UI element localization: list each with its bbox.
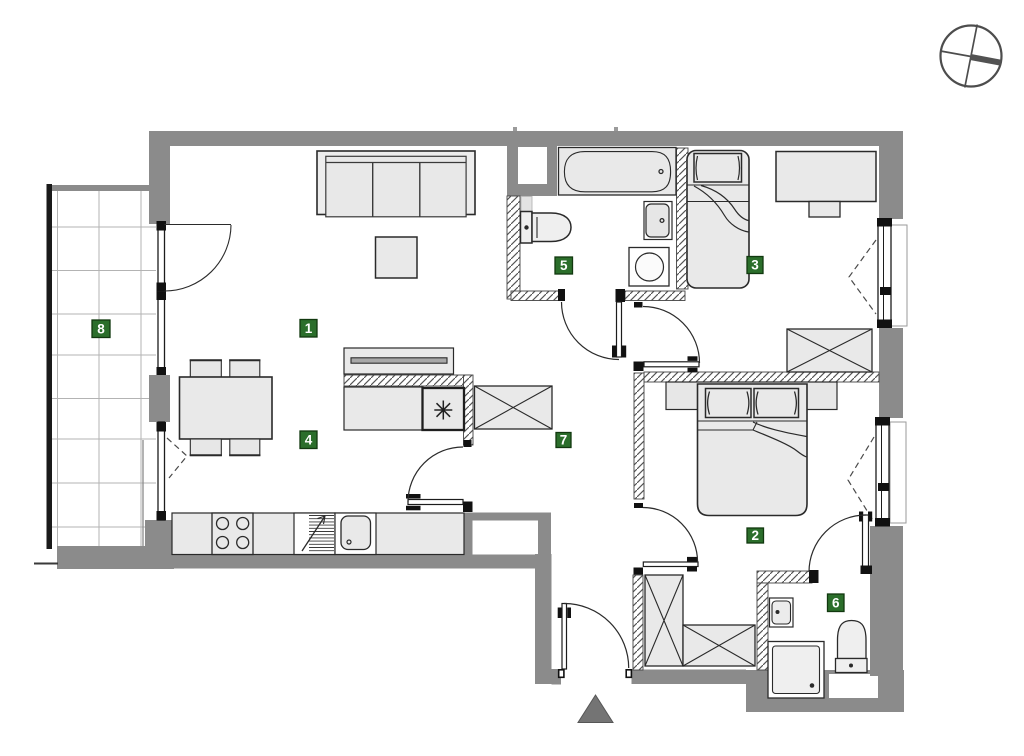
svg-text:3: 3 bbox=[751, 258, 759, 273]
svg-text:8: 8 bbox=[97, 322, 105, 337]
svg-text:5: 5 bbox=[560, 258, 568, 273]
svg-text:2: 2 bbox=[751, 528, 759, 543]
svg-text:6: 6 bbox=[832, 596, 840, 611]
svg-text:4: 4 bbox=[305, 433, 313, 448]
svg-text:1: 1 bbox=[305, 321, 313, 336]
svg-text:7: 7 bbox=[560, 433, 568, 448]
